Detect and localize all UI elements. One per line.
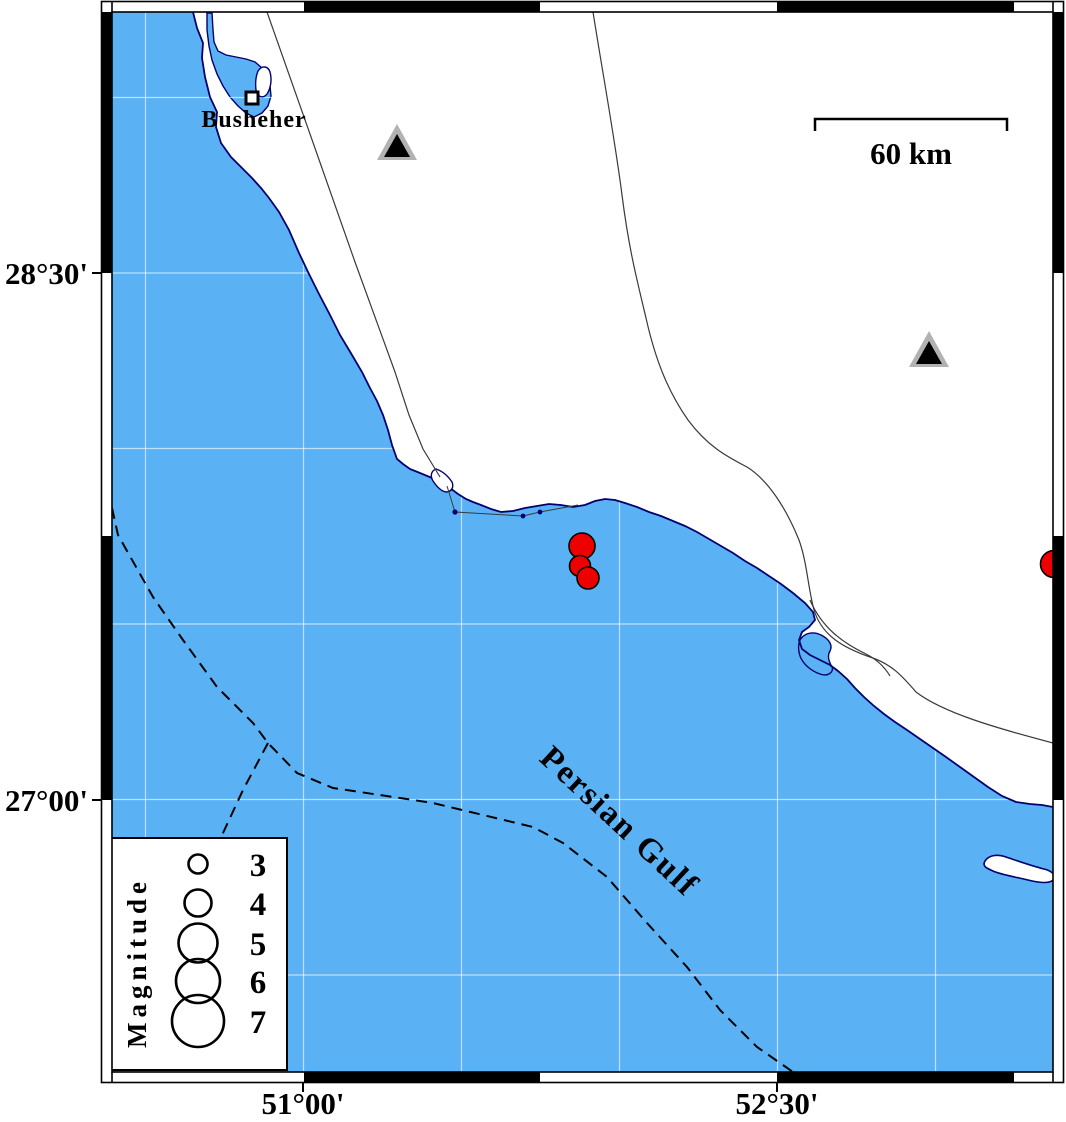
longitude-label: 52°30' bbox=[735, 1086, 818, 1121]
legend-magnitude-value: 5 bbox=[250, 927, 267, 963]
legend-magnitude-value: 7 bbox=[250, 1005, 267, 1041]
legend-magnitude-value: 4 bbox=[250, 887, 267, 923]
scale-bar-label: 60 km bbox=[870, 136, 952, 171]
city-label: Busheher bbox=[201, 107, 306, 133]
legend-numbers: 34567 bbox=[250, 848, 267, 1041]
legend-magnitude-value: 6 bbox=[250, 965, 267, 1001]
latitude-label: 28°30' bbox=[5, 256, 88, 291]
legend-title: Magnitude bbox=[122, 877, 152, 1048]
longitude-label: 51°00' bbox=[261, 1086, 344, 1121]
map-canvas: Persian Gulf Busheher 60 km Magnitude 34… bbox=[0, 0, 1066, 1122]
legend-magnitude-value: 3 bbox=[250, 848, 267, 884]
magnitude-legend: Magnitude 34567 bbox=[110, 838, 287, 1070]
map-page: Persian Gulf Busheher 60 km Magnitude 34… bbox=[0, 0, 1066, 1122]
earthquake-event bbox=[577, 567, 599, 589]
latitude-label: 27°00' bbox=[5, 783, 88, 818]
city-marker bbox=[246, 92, 258, 104]
